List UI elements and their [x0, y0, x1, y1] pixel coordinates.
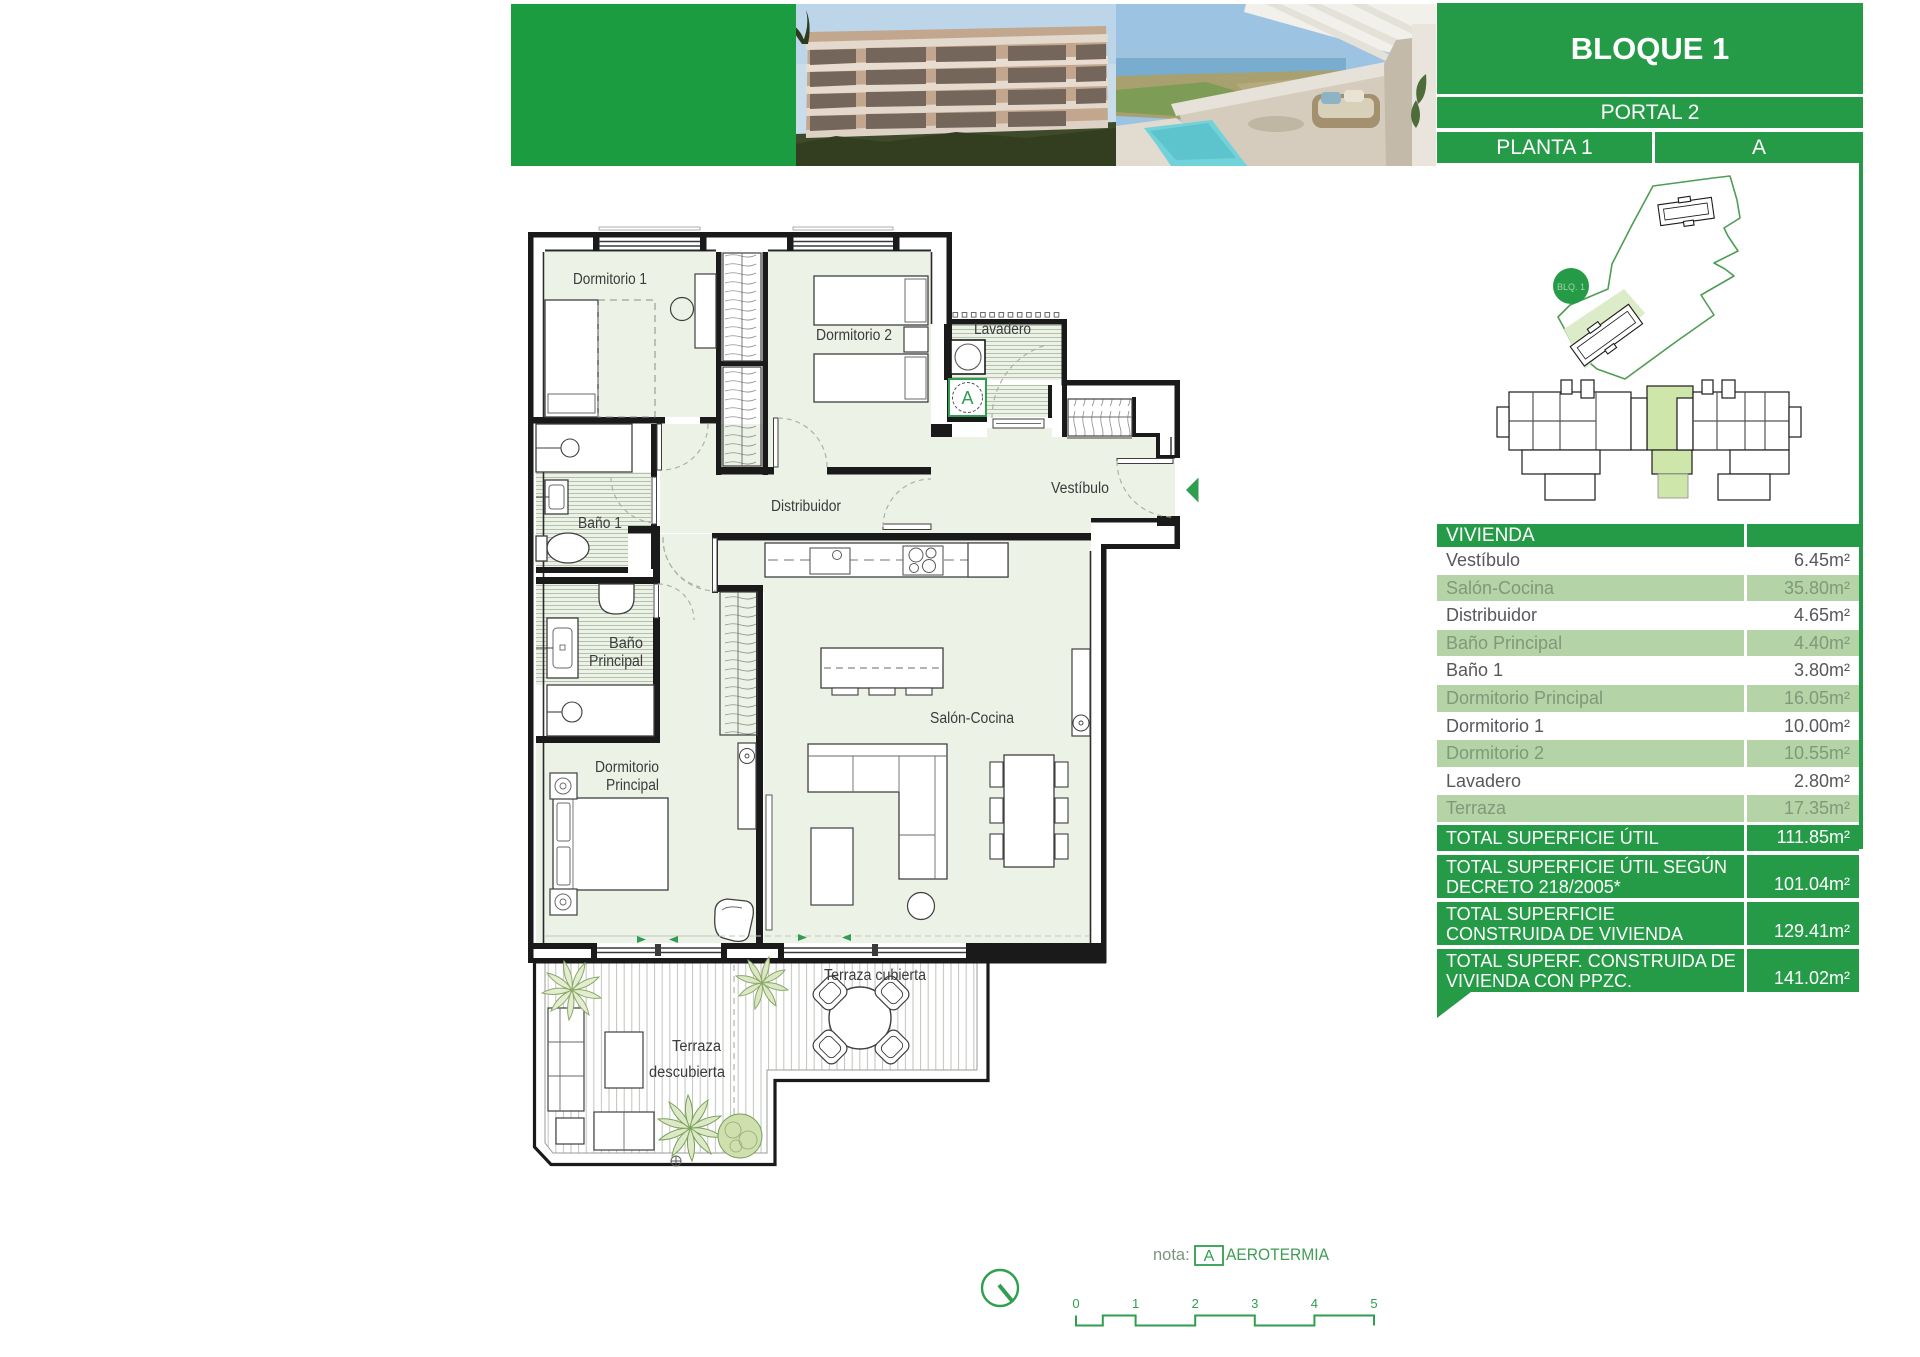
svg-text:Baño: Baño: [609, 635, 643, 652]
svg-text:0: 0: [1072, 1296, 1079, 1311]
svg-text:Principal: Principal: [589, 653, 643, 670]
svg-text:nota:: nota:: [1153, 1246, 1190, 1264]
svg-text:5: 5: [1370, 1296, 1377, 1311]
svg-text:Vestíbulo: Vestíbulo: [1051, 480, 1109, 497]
svg-text:3: 3: [1251, 1296, 1258, 1311]
svg-text:Terraza cubierta: Terraza cubierta: [824, 967, 926, 984]
svg-text:Dormitorio 2: Dormitorio 2: [816, 327, 892, 344]
svg-text:4: 4: [1311, 1296, 1318, 1311]
svg-text:descubierta: descubierta: [649, 1064, 725, 1081]
svg-text:Dormitorio: Dormitorio: [595, 759, 659, 776]
svg-text:Dormitorio 1: Dormitorio 1: [573, 271, 647, 288]
svg-text:A: A: [961, 388, 973, 408]
svg-text:AEROTERMIA: AEROTERMIA: [1226, 1245, 1330, 1264]
svg-text:A: A: [1204, 1248, 1215, 1265]
svg-text:Baño 1: Baño 1: [578, 515, 622, 532]
svg-text:Terraza: Terraza: [672, 1038, 721, 1055]
svg-text:Distribuidor: Distribuidor: [771, 498, 841, 515]
svg-text:Lavadero: Lavadero: [974, 321, 1031, 338]
svg-text:2: 2: [1192, 1296, 1199, 1311]
svg-text:Principal: Principal: [606, 777, 659, 794]
svg-text:1: 1: [1132, 1296, 1139, 1311]
svg-text:Salón-Cocina: Salón-Cocina: [930, 710, 1014, 727]
